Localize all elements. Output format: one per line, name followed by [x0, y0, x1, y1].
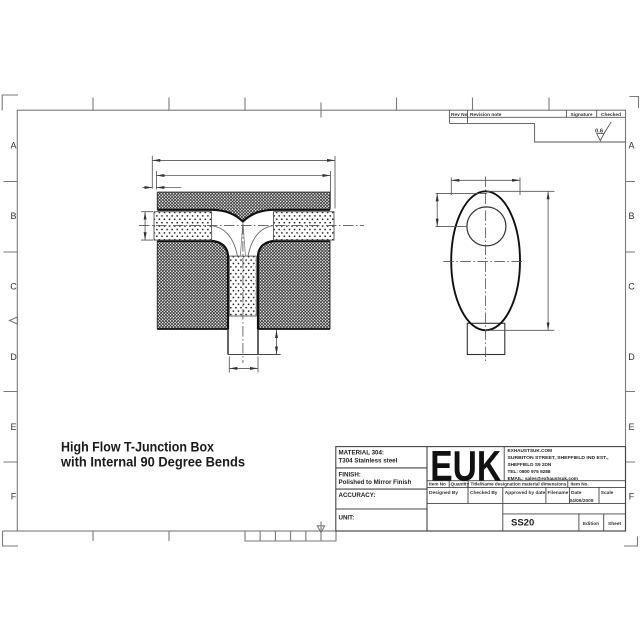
svg-text:Revision note: Revision note — [470, 112, 502, 118]
svg-text:D: D — [628, 352, 635, 362]
svg-text:Sheet: Sheet — [608, 521, 621, 527]
svg-text:A: A — [10, 141, 16, 151]
svg-text:Edition: Edition — [583, 521, 599, 527]
svg-text:D: D — [10, 352, 17, 362]
svg-text:Approved by date: Approved by date — [505, 490, 546, 496]
svg-text:SHEFFIELD S9 2DN: SHEFFIELD S9 2DN — [508, 462, 552, 467]
svg-text:UNIT:: UNIT: — [339, 515, 355, 522]
svg-text:T304 Stainless steel: T304 Stainless steel — [339, 458, 398, 465]
svg-text:F: F — [629, 492, 635, 502]
svg-text:Item No: Item No — [429, 482, 446, 487]
svg-text:EMAIL: sales@exhaustsuk.com: EMAIL: sales@exhaustsuk.com — [508, 476, 578, 481]
svg-text:F: F — [11, 492, 17, 502]
svg-text:with Internal 90 Degree Bends: with Internal 90 Degree Bends — [60, 454, 245, 470]
svg-text:ACCURACY:: ACCURACY: — [339, 492, 376, 499]
svg-text:Date: Date — [571, 490, 582, 496]
svg-text:Title/Name designation materia: Title/Name designation material dimensio… — [471, 482, 567, 487]
svg-text:B: B — [628, 211, 634, 221]
svg-text:Polished to Mirror Finish: Polished to Mirror Finish — [339, 479, 412, 486]
svg-text:C: C — [10, 282, 17, 292]
svg-text:C: C — [628, 282, 635, 292]
svg-text:Item No.: Item No. — [571, 482, 589, 487]
svg-text:SURBITON STREET, SHEFFIELD IND: SURBITON STREET, SHEFFIELD IND EST., — [508, 455, 609, 460]
svg-text:Designed By: Designed By — [429, 490, 458, 496]
svg-text:TEL: 0800 975 9288: TEL: 0800 975 9288 — [508, 469, 551, 474]
svg-text:Signature: Signature — [570, 112, 592, 118]
svg-text:SS20: SS20 — [511, 517, 534, 528]
svg-text:EXHAUSTSUK.COM: EXHAUSTSUK.COM — [508, 448, 553, 453]
svg-text:MATERIAL 304:: MATERIAL 304: — [339, 450, 385, 457]
svg-text:Checked: Checked — [601, 112, 621, 118]
svg-text:E: E — [10, 422, 16, 432]
svg-text:Scale: Scale — [601, 490, 614, 496]
svg-text:Checked By: Checked By — [470, 490, 498, 496]
svg-text:Quantity: Quantity — [451, 482, 470, 487]
svg-text:High Flow T-Junction Box: High Flow T-Junction Box — [61, 439, 214, 455]
svg-text:FINISH:: FINISH: — [339, 472, 361, 479]
svg-text:B: B — [10, 211, 16, 221]
svg-text:E: E — [628, 422, 634, 432]
svg-text:Rev No: Rev No — [451, 112, 468, 118]
svg-text:A: A — [628, 141, 634, 151]
svg-text:04/06/2009: 04/06/2009 — [570, 498, 594, 504]
svg-text:Filename: Filename — [548, 490, 569, 496]
